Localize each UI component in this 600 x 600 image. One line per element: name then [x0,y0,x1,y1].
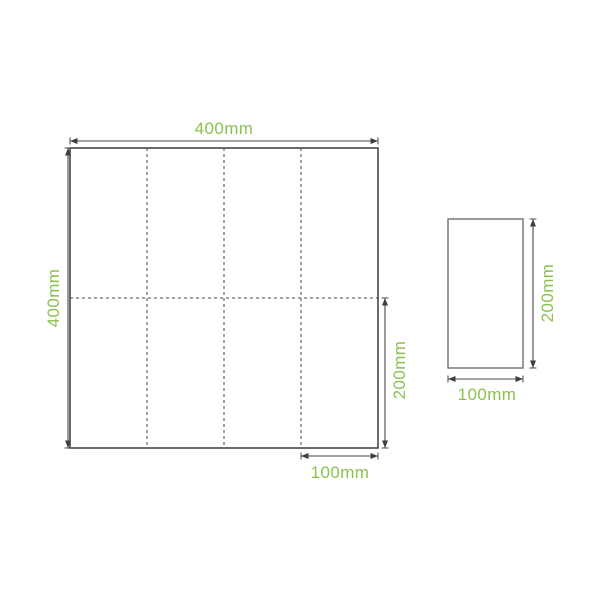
unfolded-width-label: 400mm [195,119,254,138]
unfolded-panel-width-label: 100mm [311,463,370,482]
unfolded-height-label: 400mm [44,269,63,328]
folded-sheet-outline [448,219,523,368]
unfolded-width-dimension: 400mm [70,119,378,145]
unfolded-half-height-dimension: 200mm [382,298,409,448]
napkin-dimension-diagram: 400mm 400mm 200mm 100mm [0,0,600,600]
unfolded-half-height-label: 200mm [390,341,409,400]
folded-height-label: 200mm [538,264,557,323]
unfolded-panel-width-dimension: 100mm [301,453,378,483]
folded-width-label: 100mm [458,385,517,404]
folded-height-dimension: 200mm [530,219,557,368]
unfolded-sheet: 400mm 400mm 200mm 100mm [44,119,409,482]
folded-width-dimension: 100mm [448,376,523,405]
unfolded-height-dimension: 400mm [44,148,72,448]
folded-sheet: 200mm 100mm [448,219,557,404]
diagram-canvas: 400mm 400mm 200mm 100mm [0,0,600,600]
